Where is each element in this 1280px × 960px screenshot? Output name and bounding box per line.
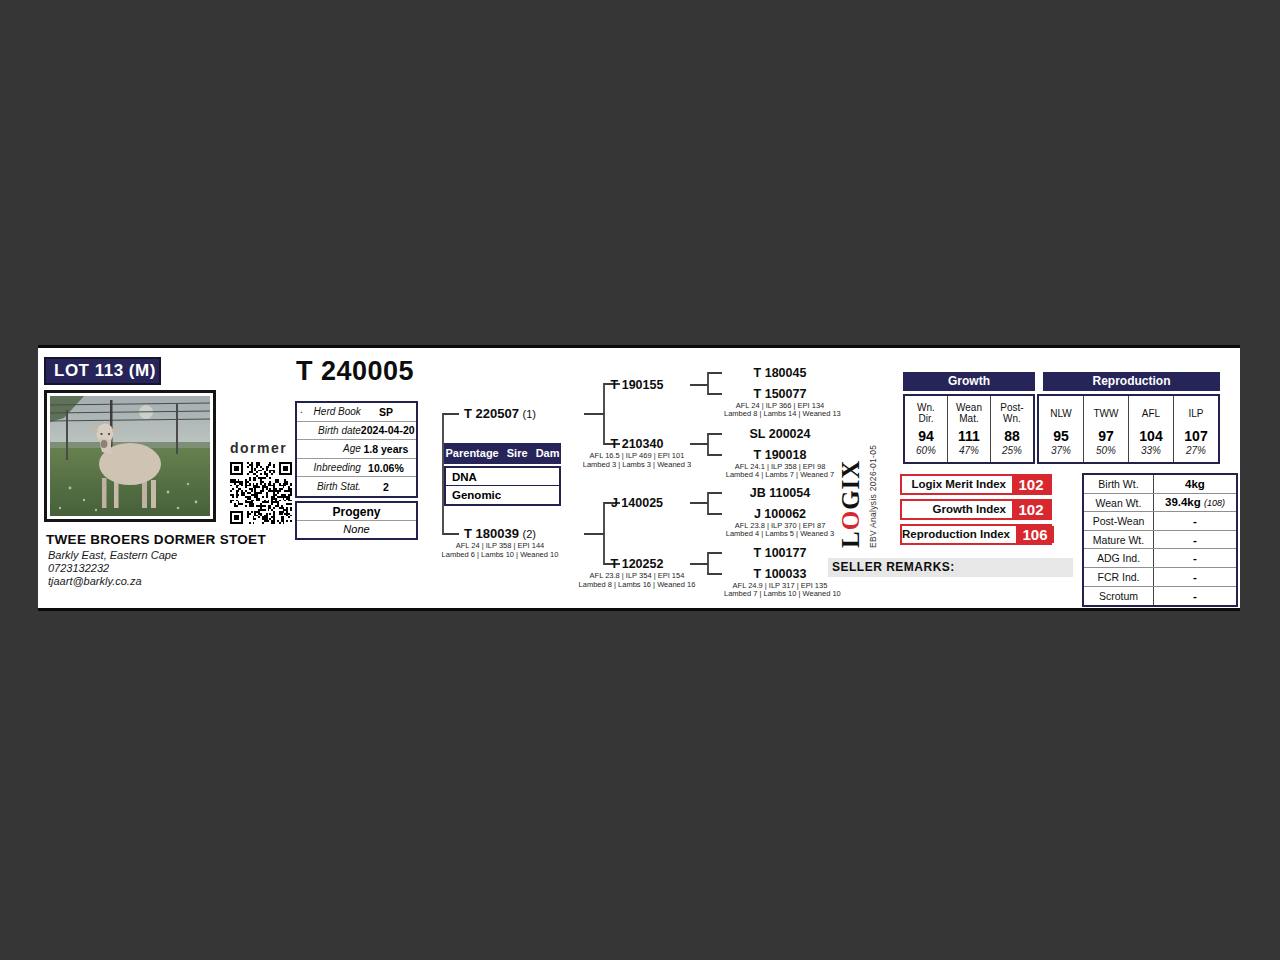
weight-label: ADG Ind. <box>1084 549 1154 567</box>
info-row-age: Age 1.8 years <box>297 440 416 459</box>
sire-id: T 220507 <box>464 406 519 421</box>
weights-row-mature: Mature Wt. - <box>1084 531 1236 550</box>
logix-letter-l: L <box>837 530 864 548</box>
weight-number: - <box>1154 515 1236 527</box>
pedigree-gen3-5: J 100062 <box>724 507 836 521</box>
weight-value: 39.4kg (108) <box>1154 496 1236 508</box>
info-row-inbreeding: Inbreeding 10.06% <box>297 459 416 478</box>
repro-col-tww: TWW 97 50% <box>1084 396 1129 462</box>
pedigree-gen2-1: T 210340 <box>577 437 697 451</box>
col-label: Wean <box>956 402 982 413</box>
weight-label: Post-Wean <box>1084 512 1154 530</box>
progeny-header: Progeny <box>297 503 416 521</box>
ebv-analysis-date: EBV Analysis 2026-01-05 <box>868 445 878 548</box>
gen2-3-stats: AFL 23.8 | ILP 354 | EPI 154 <box>577 571 697 580</box>
index-value: 106 <box>1016 526 1054 543</box>
col-accuracy: 47% <box>959 445 979 456</box>
weight-label: Scrotum <box>1084 587 1154 606</box>
weight-number: 39.4kg <box>1165 496 1201 508</box>
col-label: Mat. <box>956 413 982 424</box>
breeder-phone: 0723132232 <box>48 562 109 574</box>
weight-note: (108) <box>1204 498 1225 508</box>
gen2-3-lambing: Lambed 8 | Lambs 16 | Weaned 16 <box>577 580 697 589</box>
weight-value: 4kg <box>1154 478 1236 490</box>
growth-table: Wn. Dir. 94 60% Wean Mat. 111 47% Post- … <box>903 394 1035 464</box>
repro-col-afl: AFL 104 33% <box>1129 396 1174 462</box>
seller-remarks-label: SELLER REMARKS: <box>828 558 1073 577</box>
logix-letters-gix: GIX <box>837 460 864 510</box>
pedigree-dam: T 180039 (2) <box>438 526 562 541</box>
dam-id: T 180039 <box>464 526 519 541</box>
reproduction-table: NLW 95 37% TWW 97 50% AFL 104 33% ILP 10… <box>1037 394 1220 464</box>
weight-label: Wean Wt. <box>1084 494 1154 512</box>
logix-letter-o: O <box>837 510 864 530</box>
pedigree-sire: T 220507 (1) <box>438 406 562 421</box>
gen3-3-lambing: Lambed 4 | Lambs 7 | Weaned 7 <box>724 470 836 479</box>
col-value: 107 <box>1184 428 1207 444</box>
gen2-1-lambing: Lambed 3 | Lambs 3 | Weaned 3 <box>577 460 697 469</box>
growth-col-post-wn: Post- Wn. 88 25% <box>991 396 1033 462</box>
index-label: Growth Index <box>902 501 1012 518</box>
pedigree-gen3-3: T 190018 <box>724 448 836 462</box>
reproduction-header: Reproduction <box>1043 372 1220 391</box>
col-label: Wn. <box>917 402 935 413</box>
col-accuracy: 25% <box>1002 445 1022 456</box>
herd-book-dot: . <box>300 404 303 415</box>
growth-col-wean-mat: Wean Mat. 111 47% <box>948 396 991 462</box>
gen3-1-lambing: Lambed 8 | Lambs 14 | Weaned 13 <box>724 409 836 418</box>
weights-row-wean: Wean Wt. 39.4kg (108) <box>1084 494 1236 513</box>
pedigree-gen3-7: T 100033 <box>724 567 836 581</box>
info-label: Inbreeding <box>302 462 361 473</box>
sheep-photo-illustration <box>50 396 210 516</box>
info-value: 2024-04-20 <box>361 424 415 436</box>
weights-row-birth: Birth Wt. 4kg <box>1084 475 1236 494</box>
index-value: 102 <box>1012 501 1050 518</box>
col-accuracy: 60% <box>916 445 936 456</box>
pedigree-gen2-3: T 120252 <box>577 557 697 571</box>
weight-number: - <box>1154 534 1236 546</box>
weight-number: - <box>1154 590 1236 602</box>
info-row-birth-date: Birth date 2024-04-20 <box>297 422 416 441</box>
weight-label: Mature Wt. <box>1084 531 1154 549</box>
col-value: 95 <box>1053 428 1069 444</box>
repro-col-ilp: ILP 107 27% <box>1174 396 1218 462</box>
col-value: 97 <box>1098 428 1114 444</box>
index-label: Logix Merit Index <box>902 476 1012 493</box>
logix-merit-index: Logix Merit Index 102 <box>900 474 1052 495</box>
gen2-1-stats: AFL 16.5 | ILP 469 | EPI 101 <box>577 451 697 460</box>
pedigree-gen3-0: T 180045 <box>724 366 836 380</box>
logix-logo: LOGIX <box>837 460 865 548</box>
col-label: Dir. <box>917 413 935 424</box>
info-row-birth-stat: Birth Stat. 2 <box>297 477 416 496</box>
weight-number: - <box>1154 552 1236 564</box>
info-label: Birth date <box>302 425 361 436</box>
growth-header: Growth <box>903 372 1035 391</box>
info-value: SP <box>361 406 411 418</box>
progeny-value: None <box>297 521 416 538</box>
col-label: Post- <box>1000 402 1023 413</box>
growth-index: Growth Index 102 <box>900 499 1052 520</box>
pedigree-gen3-1: T 150077 <box>724 387 836 401</box>
col-accuracy: 33% <box>1141 445 1161 456</box>
weight-number: 4kg <box>1185 478 1205 490</box>
animal-id: T 240005 <box>296 356 414 387</box>
index-label: Reproduction Index <box>902 526 1016 543</box>
dam-lambing: Lambed 6 | Lambs 10 | Weaned 10 <box>438 550 562 559</box>
col-value: 111 <box>958 428 980 444</box>
qr-code-pattern <box>230 462 292 524</box>
info-label: Age <box>302 443 361 454</box>
breeder-name: TWEE BROERS DORMER STOET <box>46 532 266 547</box>
page-background: LOT 113 (M) <box>0 0 1280 960</box>
info-value: 2 <box>361 481 411 493</box>
col-accuracy: 27% <box>1186 445 1206 456</box>
sale-card: LOT 113 (M) <box>38 345 1240 611</box>
animal-photo <box>44 390 216 522</box>
dam-tag: (2) <box>523 528 536 540</box>
growth-col-wn-dir: Wn. Dir. 94 60% <box>905 396 948 462</box>
pedigree-gen3-4: JB 110054 <box>724 486 836 500</box>
col-value: 94 <box>918 428 934 444</box>
dormer-breed-logo: dormer <box>230 440 300 456</box>
reproduction-index: Reproduction Index 106 <box>900 524 1052 545</box>
weights-row-adg: ADG Ind. - <box>1084 549 1236 568</box>
weight-number: - <box>1154 571 1236 583</box>
pedigree-gen2-2: J 140025 <box>577 496 697 510</box>
breeder-location: Barkly East, Eastern Cape <box>48 549 177 561</box>
progeny-table: Progeny None <box>295 501 418 540</box>
col-value: 104 <box>1139 428 1162 444</box>
info-value: 10.06% <box>361 462 411 474</box>
animal-info-table: . Herd Book SP Birth date 2024-04-20 Age… <box>295 401 418 498</box>
pedigree-gen3-6: T 100177 <box>724 546 836 560</box>
info-label: Birth Stat. <box>302 481 361 492</box>
pedigree-gen3-2: SL 200024 <box>724 427 836 441</box>
weight-label: FCR Ind. <box>1084 568 1154 586</box>
info-label: Herd Book <box>302 406 361 417</box>
col-label: ILP <box>1188 408 1203 419</box>
index-value: 102 <box>1012 476 1050 493</box>
dam-stats: AFL 24 | ILP 358 | EPI 144 <box>438 541 562 550</box>
col-accuracy: 37% <box>1051 445 1071 456</box>
pedigree-gen2-0: T 190155 <box>577 378 697 392</box>
weights-row-scrotum: Scrotum - <box>1084 587 1236 606</box>
gen3-5-lambing: Lambed 4 | Lambs 5 | Weaned 3 <box>724 529 836 538</box>
gen3-7-lambing: Lambed 7 | Lambs 10 | Weaned 10 <box>724 589 836 598</box>
weights-table: Birth Wt. 4kg Wean Wt. 39.4kg (108) Post… <box>1082 473 1238 607</box>
weight-label: Birth Wt. <box>1084 475 1154 493</box>
col-label: AFL <box>1142 408 1160 419</box>
col-value: 88 <box>1004 428 1020 444</box>
info-row-herd-book: . Herd Book SP <box>297 403 416 422</box>
weights-row-post-wean: Post-Wean - <box>1084 512 1236 531</box>
repro-col-nlw: NLW 95 37% <box>1039 396 1084 462</box>
lot-badge: LOT 113 (M) <box>44 357 161 385</box>
weights-row-fcr: FCR Ind. - <box>1084 568 1236 587</box>
col-label: TWW <box>1094 408 1119 419</box>
col-label: Wn. <box>1000 413 1023 424</box>
qr-code <box>230 462 292 524</box>
sire-tag: (1) <box>523 408 536 420</box>
breeder-email: tjaart@barkly.co.za <box>48 575 142 587</box>
info-value: 1.8 years <box>361 443 411 455</box>
col-accuracy: 50% <box>1096 445 1116 456</box>
col-label: NLW <box>1050 408 1071 419</box>
